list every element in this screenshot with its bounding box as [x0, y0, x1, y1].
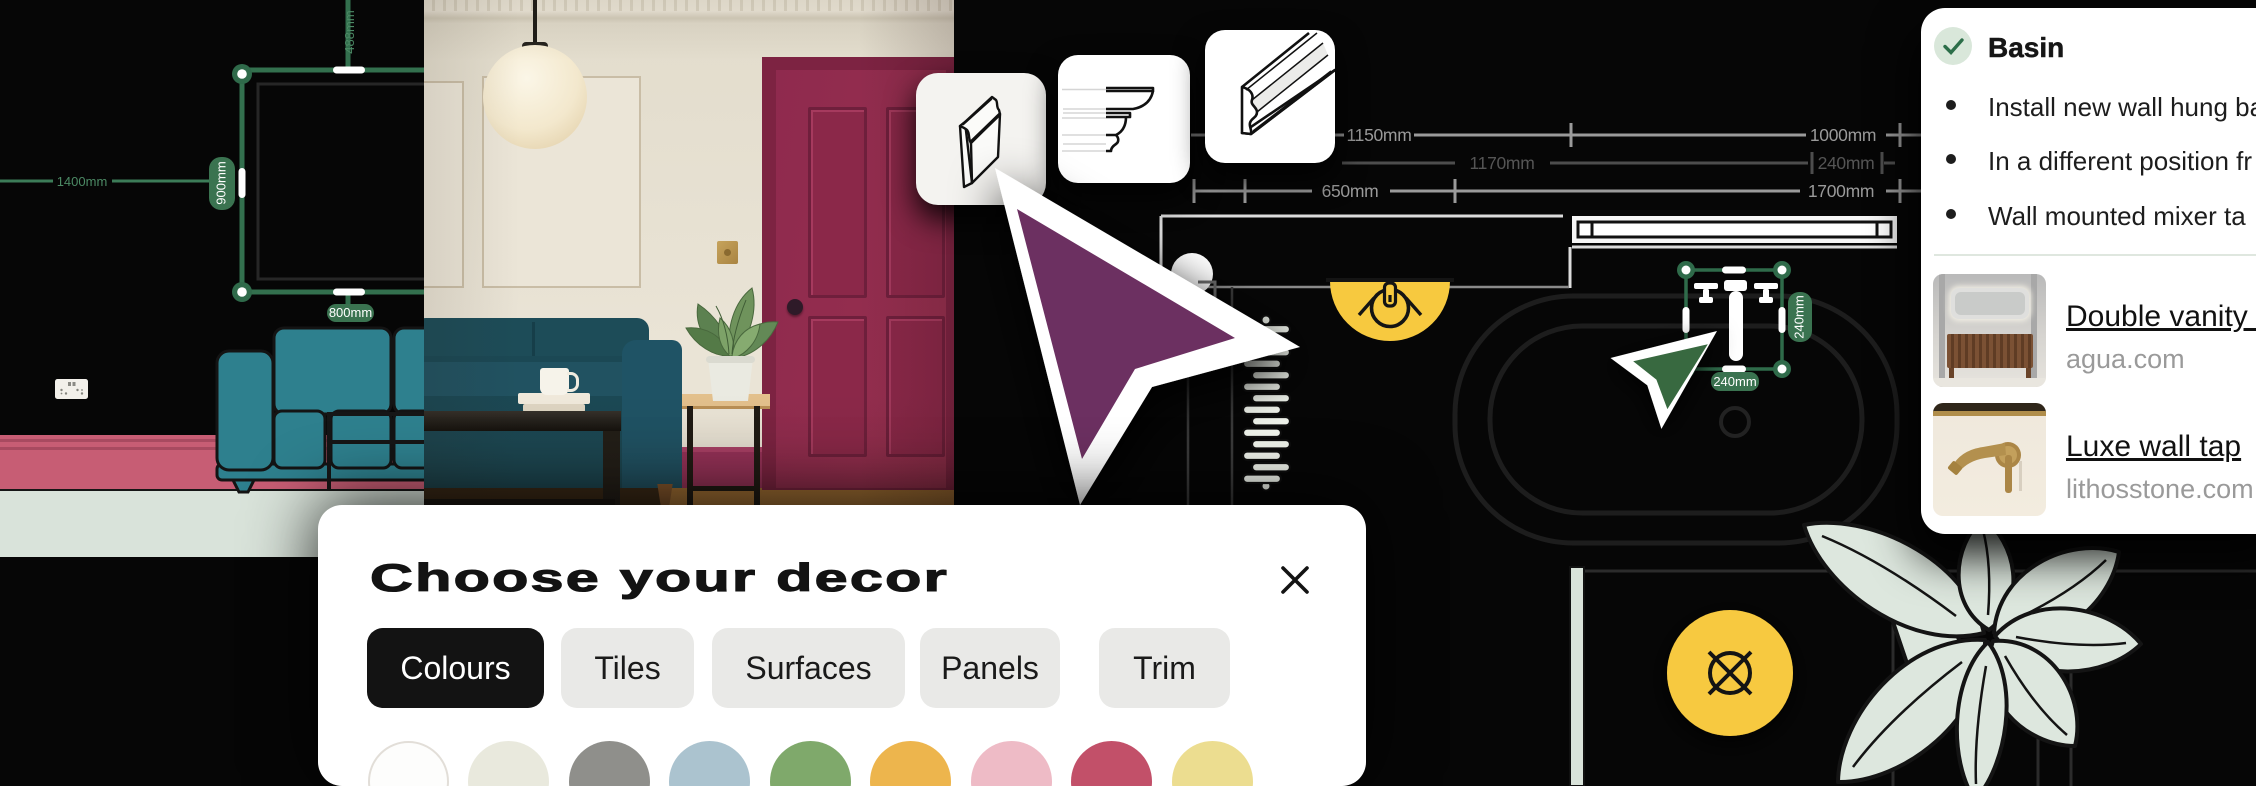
svg-text:1000mm: 1000mm: [1810, 125, 1876, 145]
svg-text:1170mm: 1170mm: [1470, 153, 1535, 173]
svg-text:240mm: 240mm: [1791, 295, 1806, 338]
svg-text:240mm: 240mm: [1818, 153, 1875, 173]
svg-text:1700mm: 1700mm: [1808, 181, 1874, 201]
svg-text:240mm: 240mm: [1713, 374, 1756, 389]
